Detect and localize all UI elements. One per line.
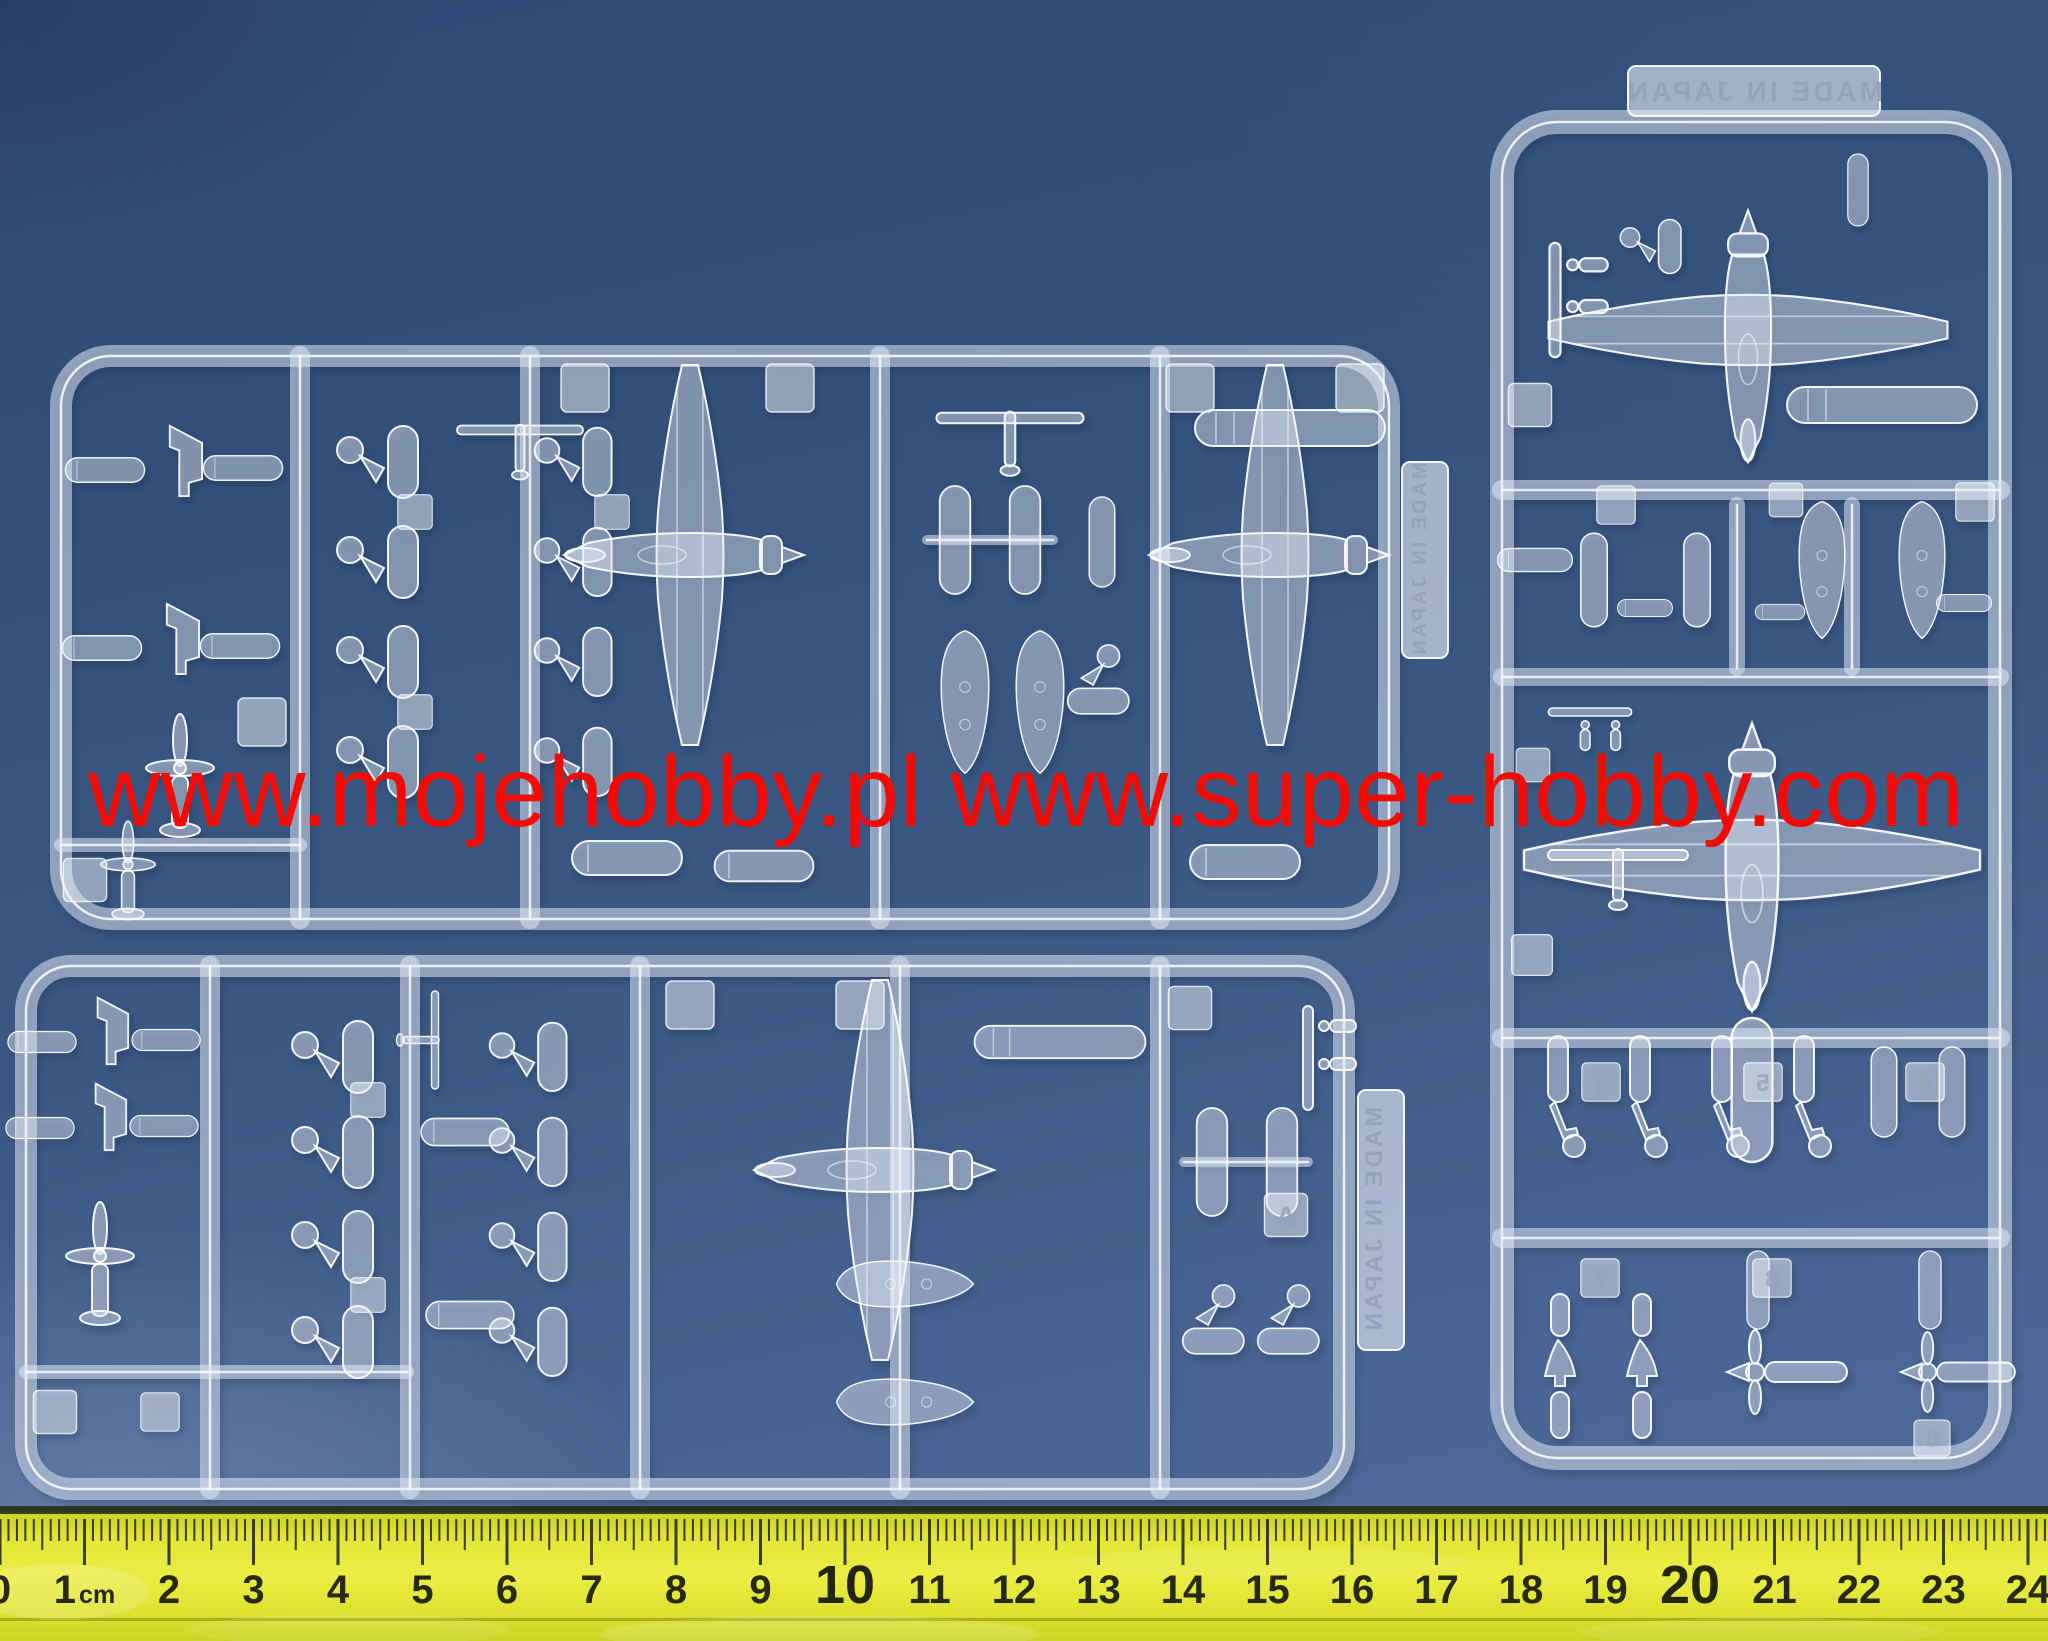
sprue-part-tank — [715, 851, 814, 882]
sprue-part-tagsq — [141, 1393, 179, 1431]
sprue-part-capsv — [1871, 1047, 1897, 1137]
sprue-part-tank — [1498, 548, 1573, 571]
part-number-tag: 8 — [1914, 1420, 1950, 1456]
sprue-part-tank — [6, 1117, 74, 1138]
part-number-tag: 5 — [1744, 1063, 1782, 1101]
ruler-number: 9 — [749, 1568, 771, 1612]
sprue-part-tagsq — [666, 981, 714, 1029]
part-number-tag: 4 — [1582, 1063, 1620, 1101]
sprue-part-tank — [200, 634, 279, 658]
part-number-tag-label: 8 — [1926, 1426, 1939, 1451]
part-number-tag: 6 — [1906, 1063, 1944, 1101]
sprue-part-arrowfin — [1545, 1294, 1575, 1438]
sprue-part-finflag — [98, 998, 129, 1065]
ruler-number: 5 — [411, 1568, 433, 1612]
sprue-part-tank — [132, 1029, 200, 1050]
sprue-part-arrowfin — [1627, 1294, 1657, 1438]
made-in-japan-text: MADE IN JAPAN — [1625, 76, 1883, 107]
part-number-tag-label: 6 — [1918, 1070, 1931, 1097]
sprue-part-bombstand — [1630, 1036, 1667, 1157]
sprue-part-tagsq — [1956, 483, 1994, 521]
sprue-part-propassy — [1727, 1330, 1847, 1414]
sprue-part-finflag — [96, 1084, 127, 1151]
sprue-part-tagsq — [398, 695, 433, 730]
sprue-part-capsv — [1919, 1251, 1941, 1329]
ruler-number: 14 — [1161, 1568, 1206, 1612]
sprue-part-tank — [130, 1115, 198, 1136]
sprue-part-floatv — [1799, 502, 1845, 639]
sprue-part-tagsq — [766, 364, 814, 412]
sprue-part-tagsq — [1166, 364, 1214, 412]
sprue-part-floath — [837, 1261, 974, 1307]
sprue-part-tagsq — [1336, 364, 1384, 412]
sprue-part-tagsq — [1769, 483, 1803, 517]
sprue-part-tagsq — [351, 1083, 386, 1118]
sprue-part-tank — [1755, 604, 1805, 619]
sprue-part-pinbomb — [535, 628, 612, 696]
ruler-number: 2 — [158, 1568, 180, 1612]
sprue-part-tank — [426, 1301, 514, 1328]
part-number-tag-label: 8 — [1765, 1266, 1778, 1293]
ruler-number: 8 — [665, 1568, 687, 1612]
sprue-part-tank — [203, 456, 282, 480]
sprue-part-tanklong — [975, 1026, 1146, 1058]
sprue-part-pinbomb — [535, 428, 612, 496]
sprue-part-tank — [1618, 600, 1673, 617]
made-in-japan-text: MADE IN JAPAN — [1409, 462, 1431, 657]
sprue-part-pinbomb — [490, 1213, 567, 1281]
sprue-part-capsv — [1848, 154, 1868, 226]
sprue-part-tagsq — [1508, 383, 1551, 426]
sprue-part-tpart — [457, 425, 583, 480]
sprue-part-tagsq — [398, 495, 433, 530]
sprue-part-tagsq — [1168, 986, 1211, 1029]
ruler-number: 7 — [580, 1568, 602, 1612]
ruler-number: 10 — [815, 1555, 875, 1615]
sprue-part-tagsq — [595, 495, 630, 530]
sprue-part-pinbomb — [1620, 220, 1681, 274]
sprue-part-tank — [1937, 595, 1992, 612]
sprue-part-tank — [1190, 845, 1300, 879]
sprue-part-tpart — [937, 412, 1084, 476]
ruler-number: 23 — [1921, 1568, 1966, 1612]
sprue-part-propT — [66, 1202, 134, 1325]
sprue-part-pinbomb — [1068, 645, 1129, 714]
ruler-number: 16 — [1330, 1568, 1375, 1612]
sprue-part-tank — [62, 636, 141, 660]
part-number-tag: 7 — [1581, 1259, 1619, 1297]
sprue-part-finflag — [170, 426, 202, 496]
sprue-part-finflag — [167, 604, 199, 674]
sprue-part-pinbomb — [337, 626, 418, 698]
sprue-part-pinbomb — [292, 1116, 373, 1188]
sprue-bottom-left: A — [6, 966, 1356, 1489]
part-letter-tag: A — [1264, 1193, 1307, 1236]
sprue-part-tank — [8, 1031, 76, 1052]
sprue-part-bombstand — [1548, 1036, 1585, 1157]
sprue-part-tagsq — [561, 364, 609, 412]
sprue-part-tagsq — [1597, 486, 1635, 524]
ruler-number: 18 — [1499, 1568, 1544, 1612]
part-number-tag-label: 4 — [1594, 1070, 1608, 1097]
ruler-number: 20 — [1660, 1555, 1720, 1615]
sprue-part-tagsq — [1512, 935, 1553, 976]
sprue-part-floatv — [1899, 502, 1945, 639]
ruler-number: 22 — [1837, 1568, 1882, 1612]
ruler-number: 4 — [327, 1568, 350, 1612]
made-in-japan-tag-side-lower: MADE IN JAPAN — [1358, 1090, 1404, 1350]
ruler-number: 24 — [2006, 1568, 2048, 1612]
sprue-part-tagsq — [63, 858, 106, 901]
ruler-number: 3 — [242, 1568, 264, 1612]
watermark-text: www.mojehobby.pl www.super-hobby.com — [88, 742, 1964, 842]
ruler-number: 12 — [992, 1568, 1037, 1612]
ruler: 01cm234567891011121314151617181920212223… — [0, 1506, 2048, 1641]
sprue-part-pinbomb — [490, 1023, 567, 1091]
ruler-number: 19 — [1583, 1568, 1628, 1612]
sprue-part-pinbomb — [292, 1211, 373, 1283]
made-in-japan-text: MADE IN JAPAN — [1361, 1107, 1388, 1334]
product-photo: A 456788 MADE IN JAPAN MADE IN JAPAN MAD… — [0, 0, 2048, 1641]
sprue-part-tanklong — [1787, 387, 1977, 423]
part-number-tag-label: 5 — [1756, 1070, 1769, 1097]
ruler-number: 17 — [1414, 1568, 1459, 1612]
sprue-part-tagsq — [351, 1278, 386, 1313]
sprue-part-capsv — [1089, 497, 1115, 587]
sprue-part-pinbomb — [1183, 1285, 1244, 1354]
part-number-tag: 8 — [1753, 1259, 1791, 1297]
sprue-part-capsv — [1010, 486, 1041, 594]
sprue-part-floath — [837, 1379, 974, 1425]
sprue-part-pinbomb — [337, 426, 418, 498]
sprue-part-bombstand — [1794, 1036, 1831, 1157]
ruler-number: 0 — [0, 1568, 11, 1612]
ruler-number: 6 — [496, 1568, 518, 1612]
sprue-part-pinbomb — [337, 526, 418, 598]
sprue-part-capsv — [940, 486, 971, 594]
sprue-part-tank — [421, 1118, 509, 1145]
sprue-part-pinbomb — [1258, 1285, 1319, 1354]
sprue-part-plane — [1549, 210, 1948, 462]
made-in-japan-tag-side-upper: MADE IN JAPAN — [1402, 462, 1448, 658]
ruler-number: 21 — [1752, 1568, 1797, 1612]
sprue-part-tank — [65, 458, 144, 482]
sprue-part-capsv — [1684, 533, 1711, 627]
sprue-part-capsv — [1197, 1108, 1228, 1216]
sprue-part-tagsq — [33, 1390, 76, 1433]
ruler-number: 13 — [1076, 1568, 1121, 1612]
sprue-part-capsv — [1581, 533, 1608, 627]
part-letter-tag-label: A — [1276, 1201, 1296, 1231]
made-in-japan-tag-top: MADE IN JAPAN — [1625, 66, 1883, 116]
ruler-number: 11 — [908, 1568, 950, 1612]
part-number-tag-label: 7 — [1593, 1266, 1606, 1293]
ruler-number: 15 — [1245, 1568, 1290, 1612]
